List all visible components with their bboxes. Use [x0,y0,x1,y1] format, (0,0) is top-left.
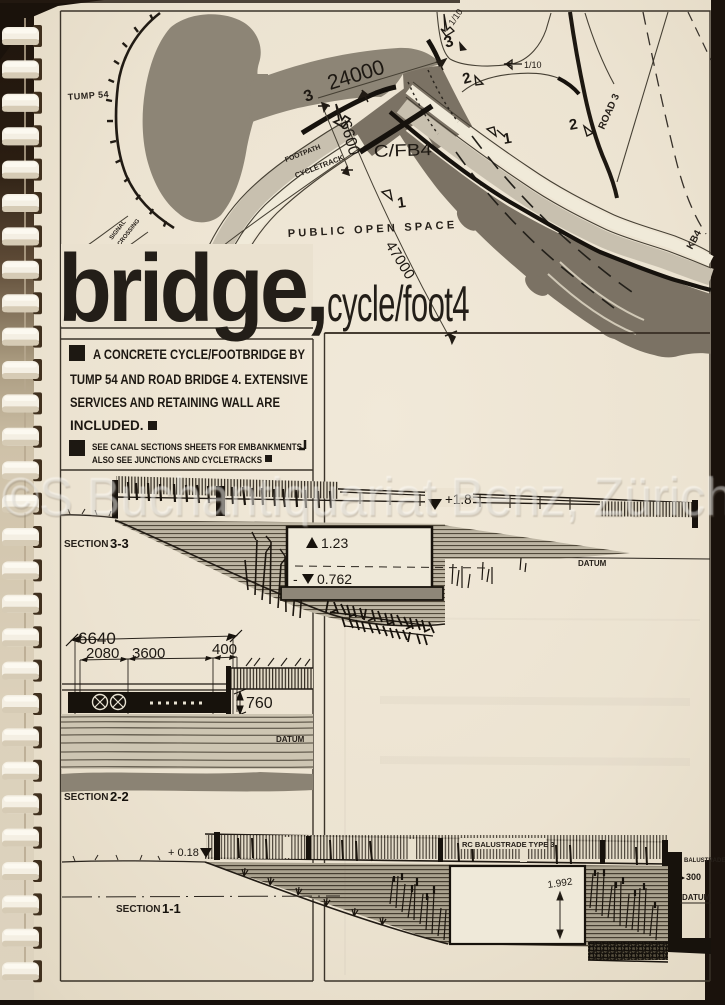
svg-text:SERVICES AND RETAINING WALL AR: SERVICES AND RETAINING WALL ARE [70,395,280,410]
svg-text:RC BALUSTRADE TYPE 3: RC BALUSTRADE TYPE 3 [462,840,555,849]
svg-text:DATUM: DATUM [682,893,711,902]
svg-text:3-3: 3-3 [110,536,129,551]
svg-text:0.762: 0.762 [317,571,352,587]
svg-text:bridge,: bridge, [58,235,326,342]
svg-text:SECTION: SECTION [64,792,108,803]
svg-text:-: - [293,571,298,587]
svg-text:A CONCRETE CYCLE/FOOTBRIDGE BY: A CONCRETE CYCLE/FOOTBRIDGE BY [93,347,305,362]
svg-text:2080: 2080 [86,645,119,662]
svg-text:SECTION: SECTION [64,539,108,550]
svg-text:INCLUDED.: INCLUDED. [70,418,144,433]
svg-text:BALUSTRADE: BALUSTRADE [684,858,725,864]
svg-text:SEE CANAL SECTIONS SHEETS FOR: SEE CANAL SECTIONS SHEETS FOR EMBANKMENT… [92,442,302,453]
svg-text:DATUM: DATUM [578,559,607,568]
svg-text:DATUM: DATUM [276,735,305,744]
svg-text:760: 760 [246,695,273,712]
svg-text:C/FB4: C/FB4 [373,140,432,161]
svg-text:1-1: 1-1 [162,901,181,916]
svg-text:cycle/foot4: cycle/foot4 [327,276,469,332]
svg-text:©S Buchantiquariat Benz, Züric: ©S Buchantiquariat Benz, Zürich [2,467,725,527]
svg-text:ALSO SEE JUNCTIONS AND CYCLETR: ALSO SEE JUNCTIONS AND CYCLETRACKS [92,455,262,466]
svg-text:300: 300 [686,872,701,882]
svg-text:TUMP 54 AND ROAD BRIDGE 4. EXT: TUMP 54 AND ROAD BRIDGE 4. EXTENSIVE [70,372,308,387]
svg-text:2-2: 2-2 [110,789,129,804]
svg-text:+ 0.18: + 0.18 [168,847,199,859]
svg-text:1/10: 1/10 [524,60,542,70]
svg-text:SECTION: SECTION [116,904,160,915]
svg-text:1.23: 1.23 [321,535,348,551]
svg-text:3600: 3600 [132,645,165,662]
